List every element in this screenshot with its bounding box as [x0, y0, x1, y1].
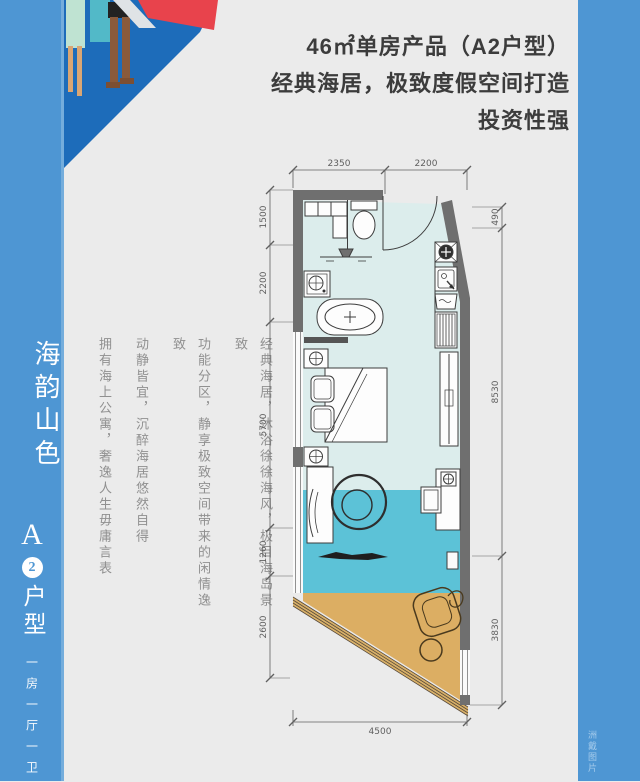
dim-bottom-1: 4500	[369, 727, 392, 737]
dim-top-1: 2350	[328, 159, 351, 169]
bath-cabinet	[305, 202, 347, 216]
dim-left-2: 2200	[259, 271, 269, 294]
dim-top-2: 2200	[415, 159, 438, 169]
dim-right-1: 490	[491, 208, 501, 225]
toilet	[353, 211, 375, 239]
double-bed	[325, 368, 387, 442]
sink-unit	[304, 271, 330, 297]
dim-right-3: 3830	[491, 618, 501, 641]
kitchen-column	[435, 242, 457, 348]
poster-page: 46㎡单房产品（A2户型） 经典海居，极致度假空间打造 投资性强 经典海居，沐浴…	[0, 0, 640, 781]
dim-left-3: 5700	[259, 413, 269, 436]
toilet-tank	[351, 201, 377, 210]
dim-left-1: 1500	[259, 205, 269, 228]
floor-plan: 2350 2200 1500 2200 5700 1260 2600 490 8…	[0, 0, 640, 781]
bath-shelf	[304, 337, 348, 343]
dim-left-5: 2600	[259, 615, 269, 638]
sand-zone	[303, 593, 460, 700]
dim-right-2: 8530	[491, 380, 501, 403]
dim-left-4: 1260	[259, 540, 269, 563]
wall-outlet	[447, 552, 458, 569]
watermark: 洲戴图片	[586, 730, 599, 774]
